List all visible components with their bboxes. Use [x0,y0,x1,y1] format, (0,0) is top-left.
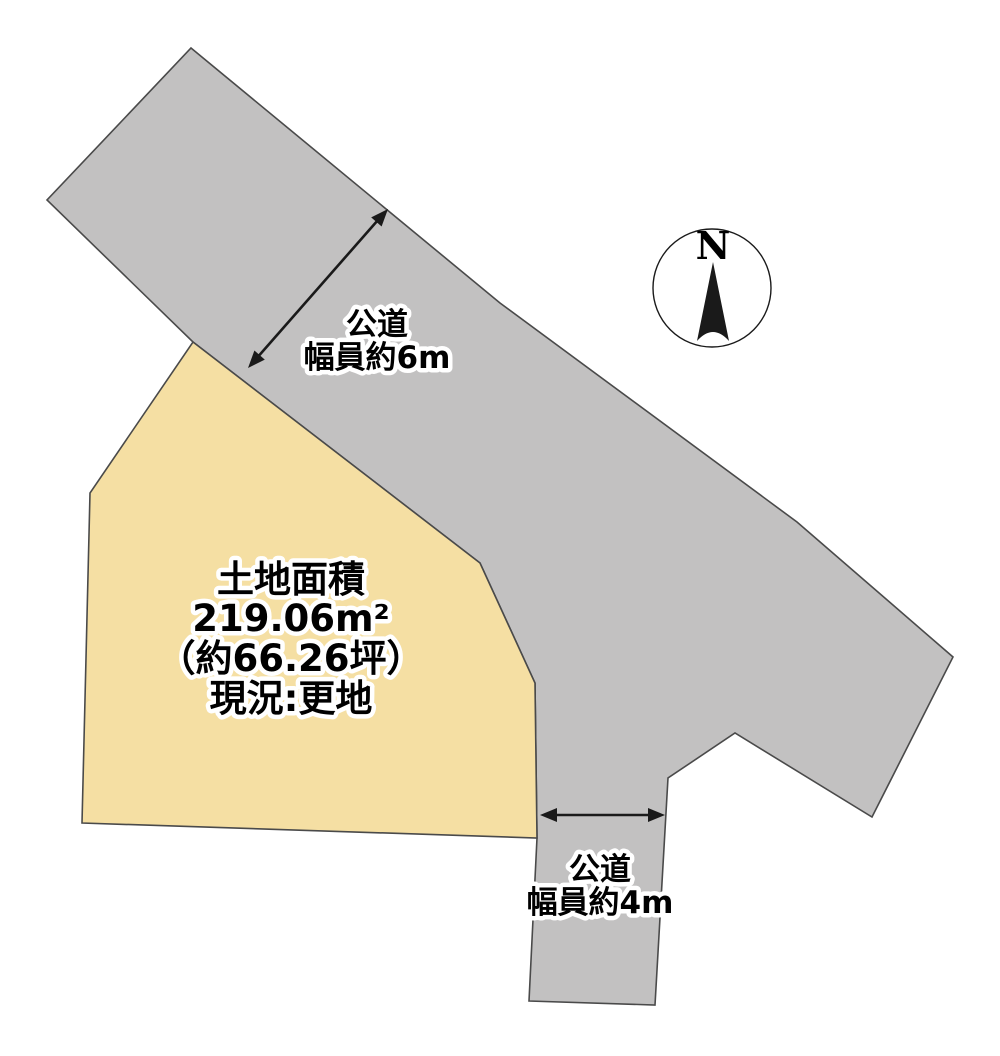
plot-diagram: N 公道 幅員約6m 土地面積 219.06m² （約66.26坪） 現況:更地… [0,0,1000,1056]
parcel-area-tsubo: （約66.26坪） [158,637,423,680]
parcel-area-sqm: 219.06m² [192,597,390,640]
compass-north-label: N [696,223,731,268]
parcel-current-state: 現況:更地 [210,677,373,720]
main-road-name: 公道 [346,307,408,343]
main-road-width-note: 幅員約6m [304,340,451,376]
compass: N [653,223,771,347]
side-road-width-note: 幅員約4m [527,885,674,921]
plot-diagram-canvas: N 公道 幅員約6m 土地面積 219.06m² （約66.26坪） 現況:更地… [0,0,1000,1056]
side-road-name: 公道 [569,852,631,888]
parcel-area-title: 土地面積 [217,558,365,601]
